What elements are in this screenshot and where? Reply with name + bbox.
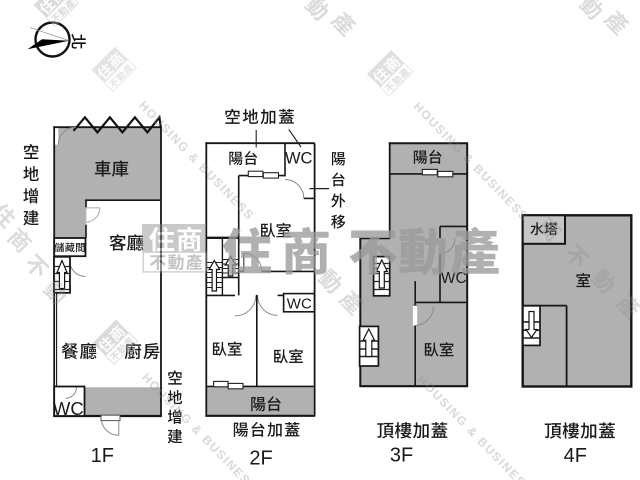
svg-text:3F: 3F — [390, 444, 413, 466]
svg-text:1F: 1F — [91, 445, 114, 467]
svg-text:WC: WC — [287, 296, 312, 313]
svg-text:4F: 4F — [564, 445, 587, 467]
svg-text:WC: WC — [53, 398, 84, 419]
svg-text:WC: WC — [285, 149, 313, 167]
svg-text:2F: 2F — [249, 447, 272, 469]
